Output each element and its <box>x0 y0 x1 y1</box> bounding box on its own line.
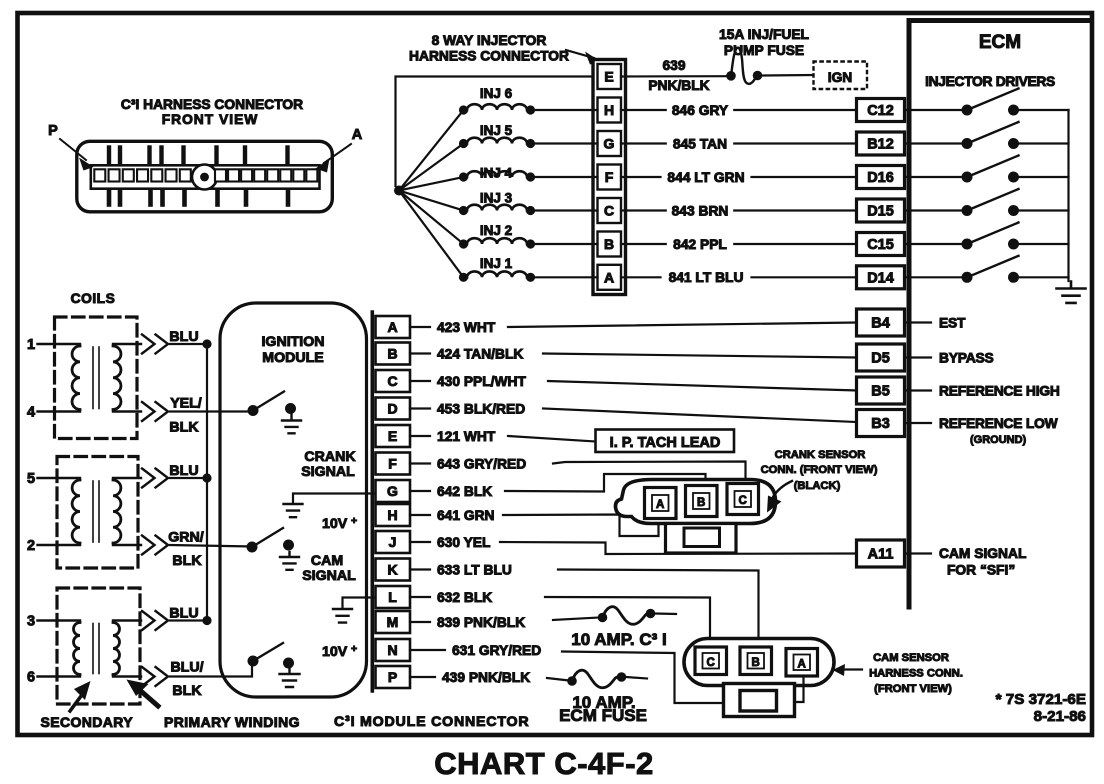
svg-text:CONN. (FRONT VIEW): CONN. (FRONT VIEW) <box>761 464 878 476</box>
svg-text:CRANK: CRANK <box>304 449 356 465</box>
svg-text:C: C <box>604 203 614 219</box>
svg-text:1: 1 <box>27 337 35 353</box>
svg-text:INJ 1: INJ 1 <box>480 256 513 271</box>
svg-text:453 BLK/RED: 453 BLK/RED <box>437 401 525 416</box>
svg-text:INJ 4: INJ 4 <box>480 166 513 181</box>
svg-text:MODULE: MODULE <box>262 350 323 366</box>
svg-text:10V: 10V <box>322 644 350 660</box>
svg-text:YEL/: YEL/ <box>170 396 202 412</box>
svg-text:D5: D5 <box>871 351 890 367</box>
svg-text:10 AMP. C³ I: 10 AMP. C³ I <box>571 630 666 649</box>
svg-text:EST: EST <box>939 315 966 330</box>
svg-text:SIGNAL: SIGNAL <box>302 568 356 584</box>
svg-text:15A INJ/FUEL: 15A INJ/FUEL <box>719 27 809 42</box>
svg-text:839 PNK/BLK: 839 PNK/BLK <box>437 615 525 630</box>
svg-text:ECM FUSE: ECM FUSE <box>559 706 647 725</box>
svg-text:P: P <box>48 123 58 139</box>
svg-text:B3: B3 <box>871 416 890 432</box>
svg-text:631 GRY/RED: 631 GRY/RED <box>452 643 541 658</box>
svg-text:B12: B12 <box>867 137 894 153</box>
svg-text:ECM: ECM <box>979 32 1021 53</box>
svg-text:CAM SENSOR: CAM SENSOR <box>873 652 949 664</box>
svg-text:643 GRY/RED: 643 GRY/RED <box>437 456 526 471</box>
svg-text:A: A <box>387 319 397 335</box>
svg-text:B: B <box>697 497 705 509</box>
svg-text:BLK: BLK <box>172 553 202 569</box>
svg-text:IGNITION: IGNITION <box>261 334 324 350</box>
svg-text:J: J <box>389 534 397 550</box>
svg-text:K: K <box>387 562 397 578</box>
svg-text:REFERENCE HIGH: REFERENCE HIGH <box>939 383 1060 398</box>
svg-text:C12: C12 <box>867 103 894 119</box>
svg-text:BLU: BLU <box>169 463 198 479</box>
svg-text:CAM: CAM <box>311 553 343 569</box>
svg-text:BLU: BLU <box>169 606 198 622</box>
svg-text:BLU: BLU <box>169 329 198 345</box>
svg-text:FRONT VIEW: FRONT VIEW <box>162 112 259 127</box>
svg-text:INJ 3: INJ 3 <box>480 191 513 206</box>
svg-text:G: G <box>387 483 398 499</box>
svg-text:INJECTOR DRIVERS: INJECTOR DRIVERS <box>925 74 1055 89</box>
svg-text:632 BLK: 632 BLK <box>437 590 492 605</box>
svg-text:F: F <box>605 169 614 185</box>
svg-text:+: + <box>351 643 357 655</box>
svg-text:C: C <box>707 657 715 669</box>
svg-text:A11: A11 <box>868 547 894 563</box>
svg-text:A: A <box>604 270 614 286</box>
svg-text:423 WHT: 423 WHT <box>437 320 496 335</box>
svg-text:B: B <box>387 346 397 362</box>
svg-text:841 LT BLU: 841 LT BLU <box>669 270 744 285</box>
svg-text:(GROUND): (GROUND) <box>970 434 1027 446</box>
svg-text:BLU/: BLU/ <box>170 660 203 676</box>
svg-text:844 LT GRN: 844 LT GRN <box>667 170 744 185</box>
svg-text:4: 4 <box>27 405 35 421</box>
svg-text:INJ 5: INJ 5 <box>480 123 513 138</box>
svg-text:10V: 10V <box>322 516 350 532</box>
svg-text:3: 3 <box>27 614 35 630</box>
svg-text:N: N <box>387 642 397 658</box>
svg-text:INJ 2: INJ 2 <box>480 223 512 238</box>
svg-text:M: M <box>387 614 399 630</box>
svg-text:C: C <box>739 495 747 507</box>
svg-text:IGN: IGN <box>828 70 853 85</box>
svg-text:2: 2 <box>27 538 35 554</box>
svg-text:439 PNK/BLK: 439 PNK/BLK <box>442 670 530 685</box>
svg-text:642 BLK: 642 BLK <box>437 484 492 499</box>
svg-text:C³I MODULE CONNECTOR: C³I MODULE CONNECTOR <box>334 714 529 730</box>
svg-text:B: B <box>752 657 760 669</box>
svg-text:6: 6 <box>27 670 35 686</box>
svg-text:CAM SIGNAL: CAM SIGNAL <box>939 546 1026 561</box>
svg-text:CRANK SENSOR: CRANK SENSOR <box>775 449 866 461</box>
svg-text:D15: D15 <box>867 204 894 220</box>
svg-text:845 TAN: 845 TAN <box>673 136 727 151</box>
svg-text:430 PPL/WHT: 430 PPL/WHT <box>437 374 527 389</box>
svg-text:* 7S 3721-6E: * 7S 3721-6E <box>996 691 1086 708</box>
svg-text:COILS: COILS <box>71 291 116 306</box>
svg-text:A: A <box>352 127 363 143</box>
svg-text:121 WHT: 121 WHT <box>437 429 496 444</box>
svg-text:633 LT BLU: 633 LT BLU <box>437 562 512 577</box>
svg-text:PNK/BLK: PNK/BLK <box>648 78 709 93</box>
svg-text:C15: C15 <box>867 237 894 253</box>
svg-text:8 WAY INJECTOR: 8 WAY INJECTOR <box>432 33 547 48</box>
svg-text:630 YEL: 630 YEL <box>437 535 490 550</box>
svg-text:INJ 6: INJ 6 <box>480 86 513 101</box>
svg-text:641 GRN: 641 GRN <box>437 508 495 523</box>
svg-text:GRN/: GRN/ <box>168 530 204 546</box>
svg-text:842 PPL: 842 PPL <box>673 237 727 252</box>
svg-text:SECONDARY: SECONDARY <box>41 714 134 730</box>
svg-text:(BLACK): (BLACK) <box>794 480 841 492</box>
svg-text:SIGNAL: SIGNAL <box>301 464 355 480</box>
svg-text:HARNESS CONNECTOR: HARNESS CONNECTOR <box>409 49 569 64</box>
svg-text:D14: D14 <box>867 271 894 287</box>
svg-text:P: P <box>388 669 397 685</box>
svg-text:H: H <box>604 102 614 118</box>
svg-text:424 TAN/BLK: 424 TAN/BLK <box>437 346 523 361</box>
svg-text:B: B <box>604 236 614 252</box>
svg-text:F: F <box>388 456 397 472</box>
svg-text:8-21-86: 8-21-86 <box>1034 708 1086 725</box>
svg-text:PRIMARY WINDING: PRIMARY WINDING <box>164 714 300 730</box>
svg-text:D: D <box>387 401 397 417</box>
svg-text:C³I HARNESS CONNECTOR: C³I HARNESS CONNECTOR <box>121 97 303 112</box>
svg-text:REFERENCE LOW: REFERENCE LOW <box>939 416 1059 431</box>
svg-text:CHART C-4F-2: CHART C-4F-2 <box>434 746 654 781</box>
svg-text:5: 5 <box>27 471 35 487</box>
svg-text:BLK: BLK <box>172 683 202 699</box>
svg-text:A: A <box>798 659 806 671</box>
svg-text:L: L <box>388 589 397 605</box>
svg-text:I. P. TACH LEAD: I. P. TACH LEAD <box>610 435 721 451</box>
svg-text:B4: B4 <box>871 316 890 332</box>
svg-text:B5: B5 <box>871 384 890 400</box>
svg-text:846 GRY: 846 GRY <box>672 103 728 118</box>
svg-text:BLK: BLK <box>169 420 199 436</box>
svg-text:E: E <box>388 428 397 444</box>
svg-text:G: G <box>604 136 615 152</box>
svg-text:A: A <box>656 499 664 511</box>
svg-text:FOR “SFI”: FOR “SFI” <box>947 563 1015 578</box>
svg-text:(FRONT VIEW): (FRONT VIEW) <box>874 683 952 695</box>
svg-text:639: 639 <box>662 58 685 73</box>
svg-text:C: C <box>387 373 397 389</box>
svg-text:H: H <box>387 507 397 523</box>
svg-text:+: + <box>351 515 357 527</box>
svg-text:D16: D16 <box>867 170 894 186</box>
svg-text:PUMP FUSE: PUMP FUSE <box>724 43 804 58</box>
svg-text:HARNESS CONN.: HARNESS CONN. <box>869 668 963 680</box>
svg-text:E: E <box>604 69 613 85</box>
svg-text:843 BRN: 843 BRN <box>672 203 729 218</box>
svg-text:BYPASS: BYPASS <box>939 350 994 365</box>
